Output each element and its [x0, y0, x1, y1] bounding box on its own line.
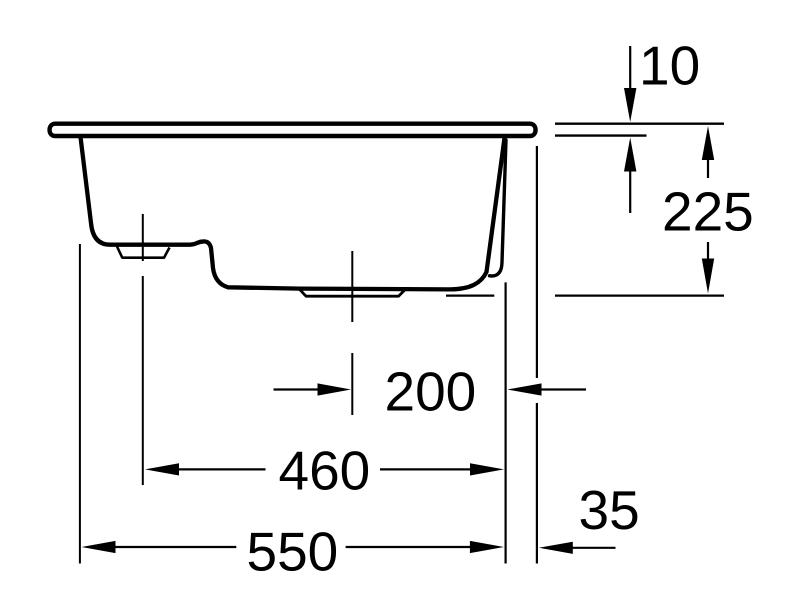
svg-text:10: 10 [639, 35, 700, 97]
svg-text:200: 200 [385, 361, 477, 423]
svg-text:460: 460 [279, 440, 371, 502]
svg-text:225: 225 [662, 181, 754, 243]
svg-text:550: 550 [247, 521, 339, 583]
svg-text:35: 35 [579, 479, 640, 541]
